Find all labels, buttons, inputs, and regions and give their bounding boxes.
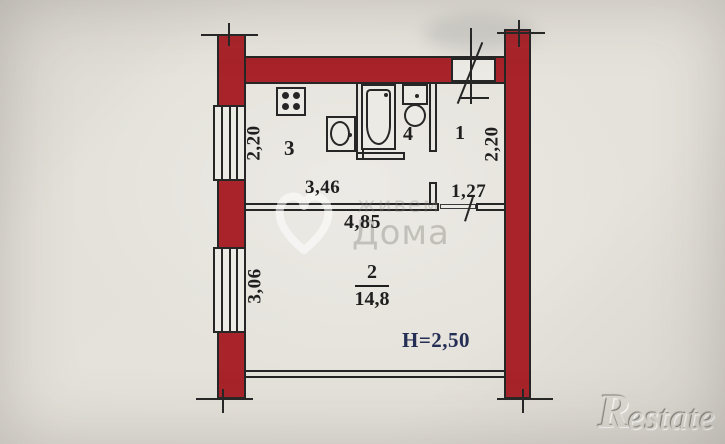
- interior-wall-horizontal: [478, 209, 504, 211]
- wall-bottom-line: [246, 370, 504, 372]
- dim-hall-depth: 2,20: [475, 113, 511, 175]
- wall-right: [504, 29, 531, 399]
- room-1-label: 1: [455, 122, 466, 145]
- window-mullion: [229, 249, 231, 331]
- logo-text-estate: estate: [628, 400, 716, 435]
- burner-dot: [282, 103, 289, 110]
- room-2-label-area: 2 14,8: [342, 261, 402, 311]
- dim-total-width: 4,85: [344, 211, 381, 234]
- wall-left: [217, 34, 246, 399]
- interior-wall-horizontal: [478, 203, 504, 205]
- window-mullion: [229, 107, 231, 179]
- bathroom-wall-bottom: [356, 152, 405, 154]
- burner-dot: [282, 92, 289, 99]
- room-2-area: 14,8: [342, 288, 402, 311]
- room-4-label: 4: [403, 123, 414, 146]
- window-mullion: [221, 249, 223, 331]
- dimension-tick: [222, 389, 224, 413]
- floorplan-photo: живем Дома 3 4 1 2 14,8 2,20 2,20 3,06 3…: [0, 0, 725, 444]
- bathroom-wall-left: [356, 84, 358, 160]
- door-jamb: [403, 152, 405, 160]
- ceiling-height-label: H=2,50: [402, 328, 470, 353]
- dimension-tick: [522, 389, 524, 413]
- door-jamb: [429, 150, 437, 152]
- dimension-tick: [518, 20, 520, 47]
- dimension-tick: [196, 398, 253, 400]
- toilet-tank-icon: [402, 84, 428, 105]
- bathtub-icon: [361, 84, 396, 150]
- sink-basin: [330, 121, 350, 146]
- bathtub-basin: [366, 89, 391, 145]
- burner-dot: [293, 92, 300, 99]
- bathroom-wall-bottom: [356, 158, 405, 160]
- toilet-dot: [415, 94, 419, 98]
- bathtub-faucet-dot: [384, 93, 388, 97]
- dimension-tick: [497, 32, 545, 34]
- interior-wall-vertical: [429, 84, 431, 152]
- room-3-label: 3: [284, 136, 295, 161]
- sink-drain-dot: [348, 133, 352, 137]
- dimension-tick: [497, 398, 553, 400]
- dim-kitchen-window: 2,20: [237, 112, 273, 174]
- interior-wall-vertical: [435, 84, 437, 152]
- dim-room2-window: 3,06: [238, 255, 274, 317]
- dimension-tick: [228, 23, 230, 46]
- window-mullion: [221, 107, 223, 179]
- sink-icon: [326, 116, 356, 152]
- stove-icon: [276, 87, 306, 116]
- wall-bottom-line: [246, 376, 504, 378]
- dimension-tick: [459, 97, 489, 99]
- dim-hall-width: 1,27: [451, 181, 486, 203]
- restate-logo: R estate: [594, 386, 725, 444]
- burner-dot: [293, 103, 300, 110]
- dim-kitchen-width: 3,46: [305, 177, 340, 199]
- room-2-number: 2: [355, 261, 389, 287]
